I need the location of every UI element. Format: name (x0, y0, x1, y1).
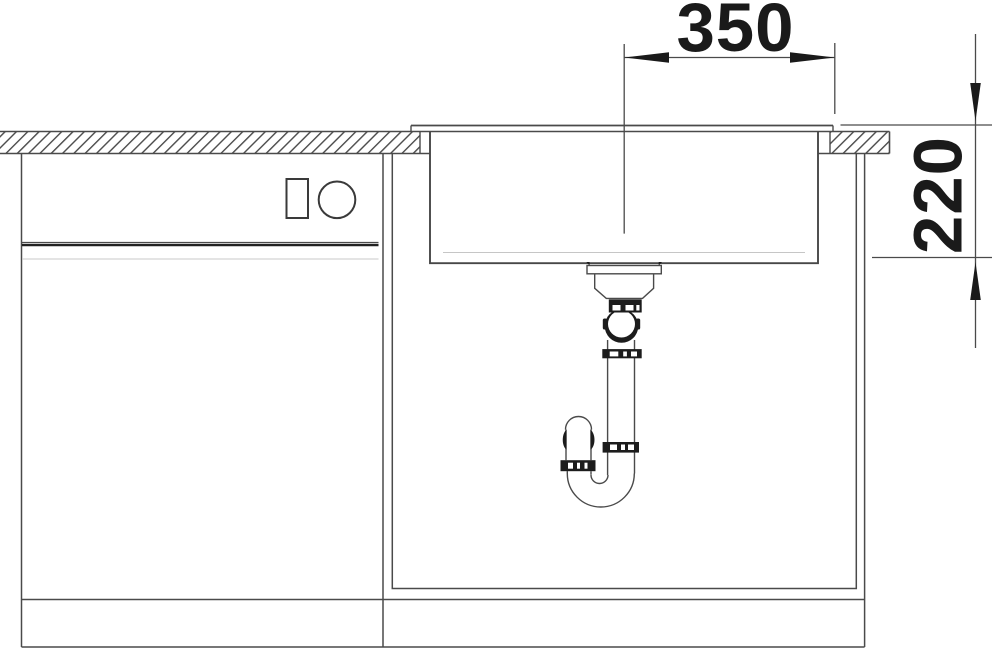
svg-text:350: 350 (676, 0, 794, 66)
svg-text:220: 220 (900, 136, 977, 254)
